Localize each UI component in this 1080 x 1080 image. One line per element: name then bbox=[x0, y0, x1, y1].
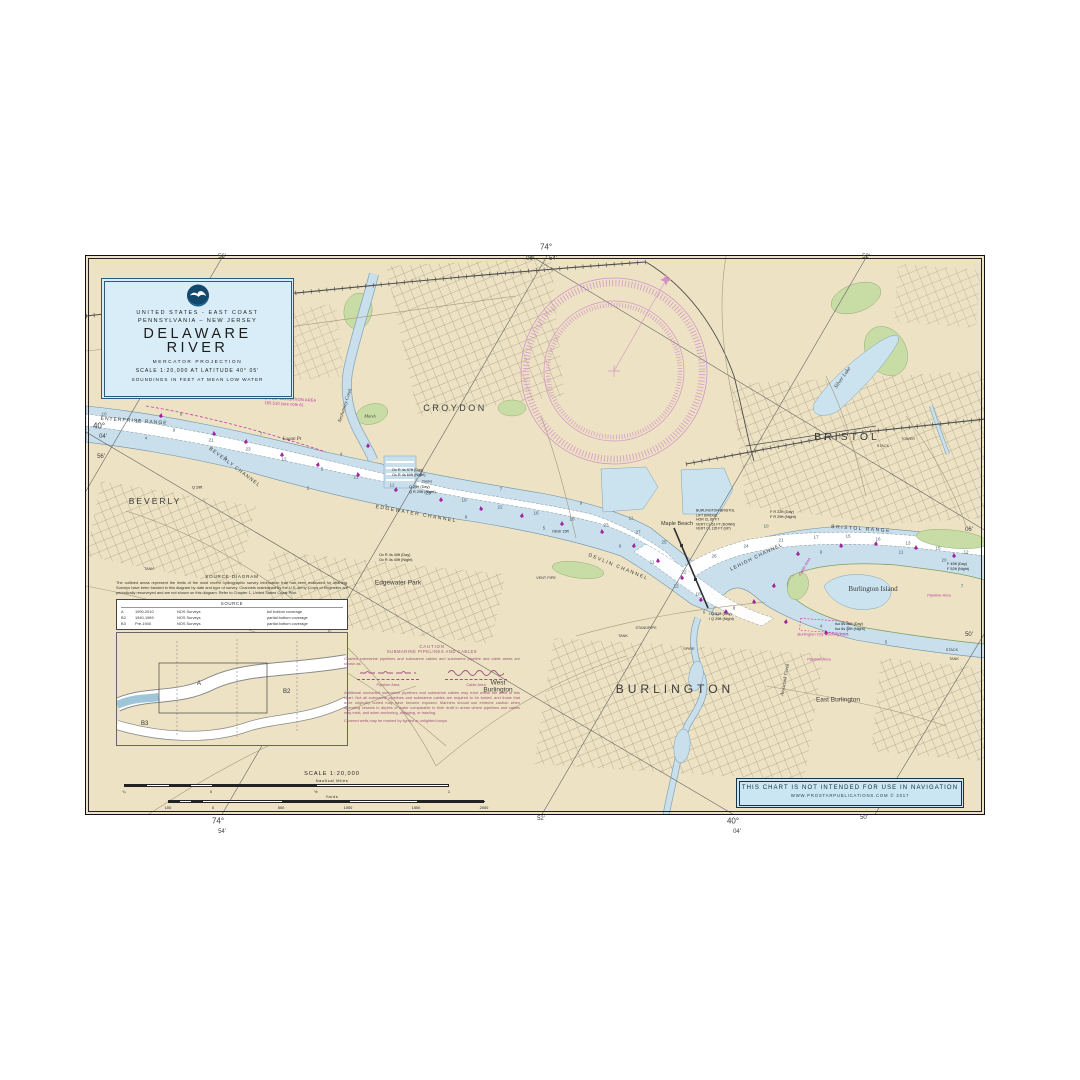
depth-sounding: 18 bbox=[569, 517, 574, 522]
map-label: Burlington Island bbox=[848, 585, 897, 593]
graticule-label: 56' bbox=[97, 454, 105, 460]
scale-tick-label: 0 bbox=[212, 805, 214, 810]
title-states-line: PENNSYLVANIA – NEW JERSEY bbox=[102, 318, 293, 324]
scale-tick-label: 2000 bbox=[480, 805, 489, 810]
depth-sounding: 27 bbox=[635, 530, 640, 535]
depth-sounding: 8 bbox=[465, 515, 468, 520]
graticule-label: 06' bbox=[965, 527, 973, 533]
caution-para3: Covered wells may be marked by lighted o… bbox=[344, 718, 520, 723]
graticule-label: 40° bbox=[93, 422, 105, 431]
map-label: VENT PIPE bbox=[536, 576, 556, 580]
graticule-label: 52' bbox=[862, 254, 870, 260]
map-label: Pipeline Area bbox=[807, 658, 831, 663]
source-diagram-body: The outlined areas represent the limits … bbox=[116, 581, 348, 596]
map-label: STACK bbox=[946, 648, 958, 652]
light-characteristic-label: F 45ft (Day) F 52ft (Night) bbox=[947, 562, 969, 572]
source-diagram-heading: SOURCE DIAGRAM bbox=[116, 574, 348, 579]
light-characteristic-label: F R 22ft (Day) F R 29ft (Night) bbox=[770, 510, 796, 520]
depth-sounding: 26 bbox=[711, 554, 716, 559]
source-table-title: SOURCE bbox=[121, 601, 343, 608]
svg-text:B2: B2 bbox=[283, 689, 291, 695]
noaa-logo-icon bbox=[186, 284, 209, 307]
caution-para2: Additional uncharted submarine pipelines… bbox=[344, 690, 520, 715]
depth-sounding: 10 bbox=[695, 592, 700, 597]
depth-sounding: 4 bbox=[820, 624, 823, 629]
depth-sounding: 17 bbox=[813, 535, 818, 540]
map-label: STACK bbox=[877, 444, 889, 448]
depth-sounding: 25 bbox=[661, 540, 666, 545]
depth-sounding: 7 bbox=[961, 584, 964, 589]
depth-sounding: 12 bbox=[281, 457, 286, 462]
caution-para1: Charted submarine pipelines and submarin… bbox=[344, 656, 520, 666]
light-characteristic-label: BURLINGTON-BRISTOL LIFT BRIDGE HOR CL 60… bbox=[696, 509, 735, 532]
depth-sounding: 7 bbox=[260, 432, 263, 437]
scale-tick-label: 0 bbox=[210, 789, 212, 794]
chart-title: DELAWARE RIVER bbox=[102, 327, 293, 357]
depth-sounding: 24 bbox=[743, 544, 748, 549]
depth-sounding: 16 bbox=[875, 537, 880, 542]
title-region-line: UNITED STATES - EAST COAST bbox=[102, 310, 293, 316]
depth-sounding: 20 bbox=[941, 558, 946, 563]
graticule-label: 56' bbox=[218, 254, 226, 260]
graticule-label: 74° bbox=[212, 817, 224, 826]
pipeline-area-symbol: Pipeline Area bbox=[357, 669, 419, 687]
map-label: Logan Pt bbox=[283, 437, 301, 443]
depth-sounding: 11 bbox=[629, 516, 634, 521]
depth-sounding: 4 bbox=[145, 436, 148, 441]
depth-sounding: 5 bbox=[885, 640, 888, 645]
graticule-label: 54' bbox=[549, 256, 557, 262]
map-label: Marsh bbox=[364, 415, 375, 420]
map-label: BRISTOL bbox=[814, 431, 880, 443]
graticule-label: 54' bbox=[218, 829, 226, 835]
title-scale-line: SCALE 1:20,000 AT LATITUDE 40° 05' bbox=[102, 368, 293, 374]
depth-sounding: 9 bbox=[580, 501, 583, 506]
symbol-divider bbox=[357, 679, 419, 680]
depth-sounding: 9 bbox=[820, 550, 823, 555]
map-label: TANK bbox=[144, 567, 154, 571]
map-label: BURLINGTON bbox=[616, 683, 734, 697]
graticule-label: 74° bbox=[540, 243, 552, 252]
depth-sounding: 15 bbox=[845, 534, 850, 539]
nautical-miles-label: Nautical Miles bbox=[246, 778, 418, 783]
scale-tick-label: ¼ bbox=[122, 789, 125, 794]
scale-tick-label: 1500 bbox=[412, 805, 421, 810]
map-label: SPIRE bbox=[683, 647, 694, 651]
light-characteristic-label: Iso 6s 25ft (Day) Iso 6s 28ft (Night) bbox=[835, 622, 865, 632]
depth-sounding: 12 bbox=[963, 550, 968, 555]
light-characteristic-label: Obstr 15ft bbox=[552, 530, 569, 535]
graticule-label: 04' bbox=[99, 434, 107, 440]
depth-sounding: 7 bbox=[500, 487, 503, 492]
map-label: BEVERLY bbox=[129, 497, 182, 507]
light-characteristic-label: Oc R 4s 57ft (Day) Oc R 4s 60ft (Night) bbox=[392, 468, 426, 478]
light-characteristic-label: Oc R 4s 40ft (Day) Oc R 4s 40ft (Night) bbox=[379, 553, 413, 563]
depth-sounding: 13 bbox=[905, 541, 910, 546]
map-label: Tanks bbox=[422, 480, 432, 485]
light-characteristic-label: Q 29ft (Day) Q R 29ft (Night) bbox=[409, 485, 436, 495]
scale-title: SCALE 1:20,000 bbox=[246, 771, 418, 777]
graticule-label: 50' bbox=[965, 632, 973, 638]
yards-bar bbox=[168, 800, 484, 803]
scale-tick-label: 1000 bbox=[344, 805, 353, 810]
map-label: Pipeline Area bbox=[927, 594, 951, 599]
svg-text:B3: B3 bbox=[141, 721, 149, 727]
depth-sounding: 16 bbox=[533, 511, 538, 516]
title-projection-line: MERCATOR PROJECTION bbox=[102, 360, 293, 365]
map-label: STANDPIPE bbox=[635, 626, 656, 630]
disclaimer-text: THIS CHART IS NOT INTENDED FOR USE IN NA… bbox=[737, 785, 963, 791]
map-label: CROYDON bbox=[423, 403, 487, 413]
depth-sounding: 19 bbox=[461, 498, 466, 503]
depth-sounding: 10 bbox=[763, 524, 768, 529]
cable-symbol-icon bbox=[448, 669, 504, 676]
depth-sounding: 15 bbox=[935, 546, 940, 551]
scale-tick-label: 1 bbox=[448, 789, 450, 794]
depth-sounding: 6 bbox=[180, 412, 183, 417]
scale-bars: SCALE 1:20,000 Nautical Miles ¼0½1 Yards… bbox=[116, 771, 496, 813]
graticule-label: 04' bbox=[733, 829, 741, 835]
depth-sounding: 2 bbox=[307, 486, 310, 491]
chart-title-block: UNITED STATES - EAST COAST PENNSYLVANIA … bbox=[101, 278, 294, 399]
graticule-label: 50' bbox=[860, 815, 868, 821]
map-label: Edgewater Park bbox=[375, 579, 421, 586]
pipeline-symbol-icon bbox=[360, 669, 416, 676]
caution-subtitle: SUBMARINE PIPELINES AND CABLES bbox=[344, 649, 520, 654]
chart-page: 56'74°06'54'52'40°04'56'06'50'74°54'52'4… bbox=[0, 0, 1080, 1080]
graticule-label: 06' bbox=[526, 256, 534, 262]
title-soundings-line: SOUNDINGS IN FEET AT MEAN LOW WATER bbox=[102, 377, 293, 382]
cable-area-symbol: Cable Area bbox=[445, 669, 507, 687]
depth-sounding: 4 bbox=[340, 452, 343, 457]
map-label: Maple Beach bbox=[661, 521, 693, 527]
source-table: SOURCE A 1990-2010 NOS Surveys full bott… bbox=[116, 599, 348, 630]
map-label: TOWER bbox=[901, 437, 915, 441]
graticule-label: 40° bbox=[727, 817, 739, 826]
depth-sounding: 22 bbox=[681, 570, 686, 575]
depth-sounding: 6 bbox=[703, 610, 706, 615]
svg-text:A: A bbox=[197, 681, 201, 687]
map-label: Burlington City Mooring Area bbox=[798, 633, 849, 638]
depth-sounding: 22 bbox=[497, 505, 502, 510]
depth-sounding: 5 bbox=[321, 467, 324, 472]
depth-sounding: 21 bbox=[208, 438, 213, 443]
source-inset-map: A B2 B3 bbox=[116, 632, 348, 746]
map-label: East Burlington bbox=[816, 696, 860, 703]
symbol-divider bbox=[445, 679, 507, 680]
depth-sounding: 9 bbox=[619, 544, 622, 549]
depth-sounding: 11 bbox=[899, 550, 904, 555]
map-label: TANK bbox=[618, 634, 628, 638]
light-characteristic-label: Q 29ft bbox=[192, 486, 202, 491]
scale-tick-label: 500 bbox=[278, 805, 285, 810]
yards-label: Yards bbox=[246, 794, 418, 799]
depth-sounding: 12 bbox=[673, 584, 678, 589]
depth-sounding: 9 bbox=[173, 428, 176, 433]
depth-sounding: 23 bbox=[245, 447, 250, 452]
caution-note: CAUTION SUBMARINE PIPELINES AND CABLES C… bbox=[344, 644, 520, 723]
depth-sounding: 11 bbox=[650, 560, 655, 565]
nautical-chart: CROYDONBRISTOLBEVERLYBURLINGTONWest Burl… bbox=[85, 255, 985, 815]
source-diagram: SOURCE DIAGRAM The outlined areas repres… bbox=[116, 574, 348, 751]
scale-tick-label: 100 bbox=[165, 805, 172, 810]
publisher-text: WWW.PROSTARPUBLICATIONS.COM © 2017 bbox=[737, 793, 963, 798]
light-characteristic-label: I Q 31ft (Day) I Q 29ft (Night) bbox=[709, 612, 734, 622]
depth-sounding: 8 bbox=[733, 606, 736, 611]
depth-sounding: 12 bbox=[389, 483, 394, 488]
navigation-disclaimer: THIS CHART IS NOT INTENDED FOR USE IN NA… bbox=[736, 778, 964, 808]
source-table-row: B3 Pre-1940 NOS Surveys partial bottom c… bbox=[121, 621, 343, 627]
map-label: TANK bbox=[949, 657, 959, 661]
nautical-miles-bar bbox=[124, 784, 449, 787]
depth-sounding: 5 bbox=[543, 526, 546, 531]
depth-sounding: 23 bbox=[603, 523, 608, 528]
graticule-label: 52' bbox=[537, 816, 545, 822]
caution-symbols: Pipeline Area Cable Area bbox=[344, 669, 520, 687]
